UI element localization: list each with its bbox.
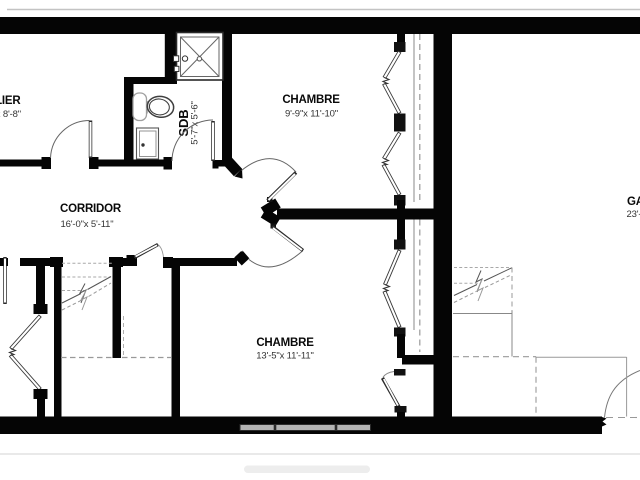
- svg-text:CHAMBRE: CHAMBRE: [282, 94, 340, 106]
- svg-text:9'-9"x 11'-10": 9'-9"x 11'-10": [285, 109, 338, 120]
- svg-text:CHAMBRE: CHAMBRE: [256, 337, 314, 349]
- svg-text:13'-5"x 11'-11": 13'-5"x 11'-11": [256, 351, 313, 362]
- svg-text:16'-0"x 5'-11": 16'-0"x 5'-11": [61, 219, 114, 230]
- svg-text:5'-7"x 5'-6": 5'-7"x 5'-6": [190, 101, 201, 144]
- svg-text:GARAGE: GARAGE: [627, 196, 640, 208]
- svg-text:13'-2"x 8'-8": 13'-2"x 8'-8": [0, 109, 21, 120]
- svg-text:CORRIDOR: CORRIDOR: [60, 203, 122, 215]
- svg-text:ESCALIER: ESCALIER: [0, 95, 21, 107]
- svg-text:23'-0"x 23'-0": 23'-0"x 23'-0": [627, 209, 640, 220]
